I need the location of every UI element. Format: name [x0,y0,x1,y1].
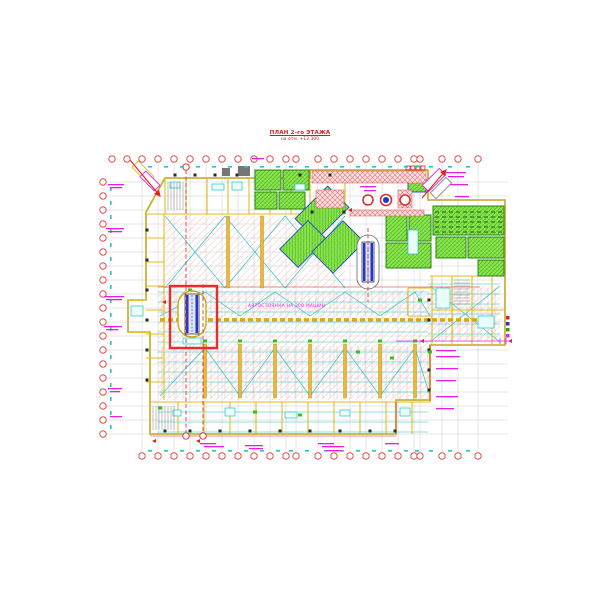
axis-bubble [100,277,106,283]
green-mark [390,357,394,360]
green-mark [203,340,207,343]
axis-bubble [417,453,423,459]
green-mark [418,299,422,302]
axis-bubble [100,207,106,213]
axis-bubble [395,156,401,162]
axis-bubble [100,263,106,269]
axis-bubble [439,453,445,459]
axis-bubble [187,156,193,162]
axis-bubble [139,156,145,162]
green-mark [428,351,432,354]
cyan-detail-rect [295,184,305,190]
cyan-tick [260,166,264,168]
cyan-tick [110,271,112,275]
direction-arrow [130,160,160,196]
parking-area-label: АВТОСТОЯНКА НА 300 МАШИН [248,304,368,309]
cyan-tick [110,313,112,317]
partition-strip [379,344,382,398]
cyan-tick [260,450,264,452]
partition-strip [414,344,417,398]
cyan-detail-rect [212,184,224,190]
axis-bubble [124,156,130,162]
annotation-text-bar [110,391,120,392]
green-room [478,260,504,276]
cyan-detail-rect [400,408,410,416]
axis-bubble [293,156,299,162]
axis-bubble [411,453,417,459]
door-mark [214,174,217,177]
axis-bubble [363,156,369,162]
cyan-tick [289,166,293,168]
annotation-text-bar [364,190,376,191]
axis-bubble [100,193,106,199]
dark-hatch-rect [222,168,230,176]
cyan-detail-rect [408,230,418,254]
green-room [279,192,305,209]
axis-bubble [219,453,225,459]
green-room [255,170,281,190]
axis-ref-bubble [183,433,189,439]
drawing-title-block: ПЛАН 2-го ЭТАЖА на отм. +12.300 [210,130,390,142]
annotation-text-bar [360,186,376,187]
axis-bubble [109,156,115,162]
cyan-detail-rect [436,288,450,308]
cyan-detail-rect [131,306,143,316]
cyan-tick [110,243,112,247]
axis-bubble [315,156,321,162]
door-mark [146,289,149,292]
cyan-tick [372,166,376,168]
red-hatch-shaft [312,171,426,183]
cyan-tick [110,425,112,429]
axis-bubble [100,305,106,311]
cyan-tick [110,201,112,205]
green-mark [238,340,242,343]
drawing-elevation: на отм. +12.300 [210,137,390,142]
door-mark [236,174,239,177]
cyan-tick [448,166,452,168]
axis-bubble [139,453,145,459]
axis-ref-bubble [200,433,206,439]
annotation-text-bar [252,158,264,159]
axis-bubble [315,453,321,459]
axis-bubble [203,156,209,162]
partition-strip [344,344,347,398]
annotation-text-bar [436,356,460,357]
axis-bubble [171,453,177,459]
door-mark [146,319,149,322]
office-desks [435,208,502,233]
annotation-text-bar [436,368,458,369]
cyan-tick [388,166,392,168]
escalator-band [196,295,199,333]
cyan-tick [305,166,309,168]
cyan-detail-rect [478,316,494,328]
axis-bubble [395,453,401,459]
annotation-text-bar [106,228,124,229]
axis-bubble [363,453,369,459]
axis-bubble [331,156,337,162]
axis-bubble [379,156,385,162]
cyan-detail-rect [170,182,180,188]
annotation-text-bar [318,443,334,444]
skylight-circle-blue [383,197,389,203]
skylight-circle [363,195,373,205]
drawing-title: ПЛАН 2-го ЭТАЖА [210,130,390,136]
cyan-tick [110,257,112,261]
green-mark [298,414,302,417]
axis-bubble [267,453,273,459]
green-mark [253,411,257,414]
axis-bubble [100,249,106,255]
cyan-tick [276,166,280,168]
axis-bubble [100,417,106,423]
axis-bubble [251,453,257,459]
cyan-tick [180,450,184,452]
annotation-text-bar [446,172,466,173]
door-mark [194,174,197,177]
axis-bubble [203,453,209,459]
axis-bubble [411,156,417,162]
floor-plan-page: ПЛАН 2-го ЭТАЖА на отм. +12.300 АВТОСТОЯ… [0,0,600,600]
green-mark [158,407,162,410]
cyan-tick [404,450,408,452]
annotation-text-bar [110,416,122,417]
partition-strip [261,216,264,288]
cyan-tick [448,450,452,452]
cyan-tick [429,166,433,168]
green-mark [356,351,360,354]
axis-bubble [171,156,177,162]
cyan-tick [429,450,433,452]
door-mark [311,211,314,214]
annotation-text-bar [104,296,124,297]
axis-bubble [100,347,106,353]
partition-strip [204,344,207,398]
green-mark [273,340,277,343]
cyan-tick [244,450,248,452]
cyan-tick [148,450,152,452]
cyan-tick [110,355,112,359]
cyan-detail-rect [225,408,235,416]
axis-bubble [379,453,385,459]
cyan-tick [148,166,152,168]
axis-bubble [347,156,353,162]
cyan-tick [356,166,360,168]
axis-bubble [100,361,106,367]
door-mark [146,229,149,232]
cyan-tick [324,166,328,168]
annotation-text-bar [108,388,122,389]
cyan-tick [340,166,344,168]
cyan-tick [196,166,200,168]
cyan-tick [110,383,112,387]
axis-bubble [455,453,461,459]
door-mark [428,369,431,372]
cyan-tick [415,450,419,452]
annotation-text-bar [106,299,122,300]
green-mark [308,340,312,343]
door-mark [428,389,431,392]
cyan-detail-rect [232,182,242,190]
door-mark [339,430,342,433]
axis-bubble [235,156,241,162]
annotation-text-bar [450,184,468,185]
annotation-text-bar [110,187,122,188]
legend-color-square [506,334,510,338]
axis-bubble [475,453,481,459]
annotation-text-bar [249,448,263,449]
door-mark [146,259,149,262]
cyan-tick [466,450,470,452]
annotation-text-bar [108,184,124,185]
axis-bubble [100,319,106,325]
partition-strip [227,216,230,288]
cyan-tick [466,166,470,168]
axis-bubble [100,431,106,437]
door-mark [189,430,192,433]
green-mark [343,340,347,343]
cyan-tick [110,215,112,219]
cyan-tick [228,450,232,452]
annotation-text-bar [322,446,344,447]
red-hatch-shaft [350,210,424,216]
cyan-tick [164,450,168,452]
axis-bubble [100,333,106,339]
cyan-detail-rect [340,410,350,416]
green-room [468,237,504,258]
floor-plan-drawing [0,0,600,600]
green-mark [378,340,382,343]
cyan-tick [110,397,112,401]
annotation-text-bar [436,350,456,351]
cyan-tick [228,166,232,168]
cyan-tick [372,450,376,452]
partition-strip [239,344,242,398]
cyan-tick [305,450,309,452]
red-flag-mark [196,439,200,443]
axis-bubble [100,403,106,409]
door-mark [174,174,177,177]
partition-strip [274,344,277,398]
cyan-tick [276,450,280,452]
door-mark [146,349,149,352]
axis-bubble [187,453,193,459]
annotation-text-bar [200,443,216,444]
axis-bubble [293,453,299,459]
axis-bubble [100,221,106,227]
legend-color-square [506,322,510,326]
axis-bubble [283,156,289,162]
cyan-tick [404,166,408,168]
annotation-text-bar [436,408,454,409]
partition-strip [309,344,312,398]
door-mark [309,430,312,433]
annotation-text-bar [448,176,464,177]
axis-bubble [417,156,423,162]
door-mark [369,430,372,433]
annotation-text-bar [436,396,458,397]
door-mark [219,430,222,433]
axis-bubble [100,235,106,241]
axis-bubble [267,156,273,162]
cyan-tick [356,450,360,452]
annotation-text-bar [106,329,118,330]
green-room [436,237,466,258]
cyan-tick [164,166,168,168]
axis-bubble [219,156,225,162]
axis-bubble [347,453,353,459]
cyan-tick [110,369,112,373]
axis-bubble [100,389,106,395]
escalator-band [363,243,366,281]
cyan-tick [110,411,112,415]
cyan-tick [415,166,419,168]
door-mark [428,319,431,322]
door-mark [146,379,149,382]
red-flag-mark [152,439,156,443]
skylight-circle [400,195,410,205]
axis-bubble [155,156,161,162]
annotation-text-bar [245,445,263,446]
cyan-tick [110,285,112,289]
axis-bubble [235,453,241,459]
cyan-tick [212,166,216,168]
axis-bubble [283,453,289,459]
legend-color-square [506,316,510,320]
escalator-band [371,243,374,281]
cyan-tick [180,166,184,168]
axis-bubble [100,179,106,185]
red-hatch-shaft [316,190,344,208]
cyan-tick [212,450,216,452]
axis-bubble [455,156,461,162]
door-mark [428,299,431,302]
cyan-tick [289,450,293,452]
annotation-text-bar [204,446,224,447]
cyan-tick [196,450,200,452]
door-mark [343,211,346,214]
annotation-text-bar [385,443,399,444]
annotation-text-bar [455,196,469,197]
door-mark [249,430,252,433]
axis-bubble [475,156,481,162]
cyan-tick [110,341,112,345]
axis-bubble [439,156,445,162]
cyan-tick [388,450,392,452]
door-mark [279,430,282,433]
annotation-text-bar [108,231,122,232]
cyan-detail-rect [285,412,297,418]
green-room [386,215,407,241]
legend-color-square [506,328,510,332]
door-mark [394,430,397,433]
cyan-tick [244,166,248,168]
axis-bubble [100,375,106,381]
green-room [255,192,277,209]
axis-bubble [331,453,337,459]
annotation-text-bar [436,380,456,381]
door-mark [299,174,302,177]
door-mark [329,174,332,177]
axis-bubble [155,453,161,459]
annotation-text-bar [104,326,122,327]
annotation-text-bar [326,450,342,451]
